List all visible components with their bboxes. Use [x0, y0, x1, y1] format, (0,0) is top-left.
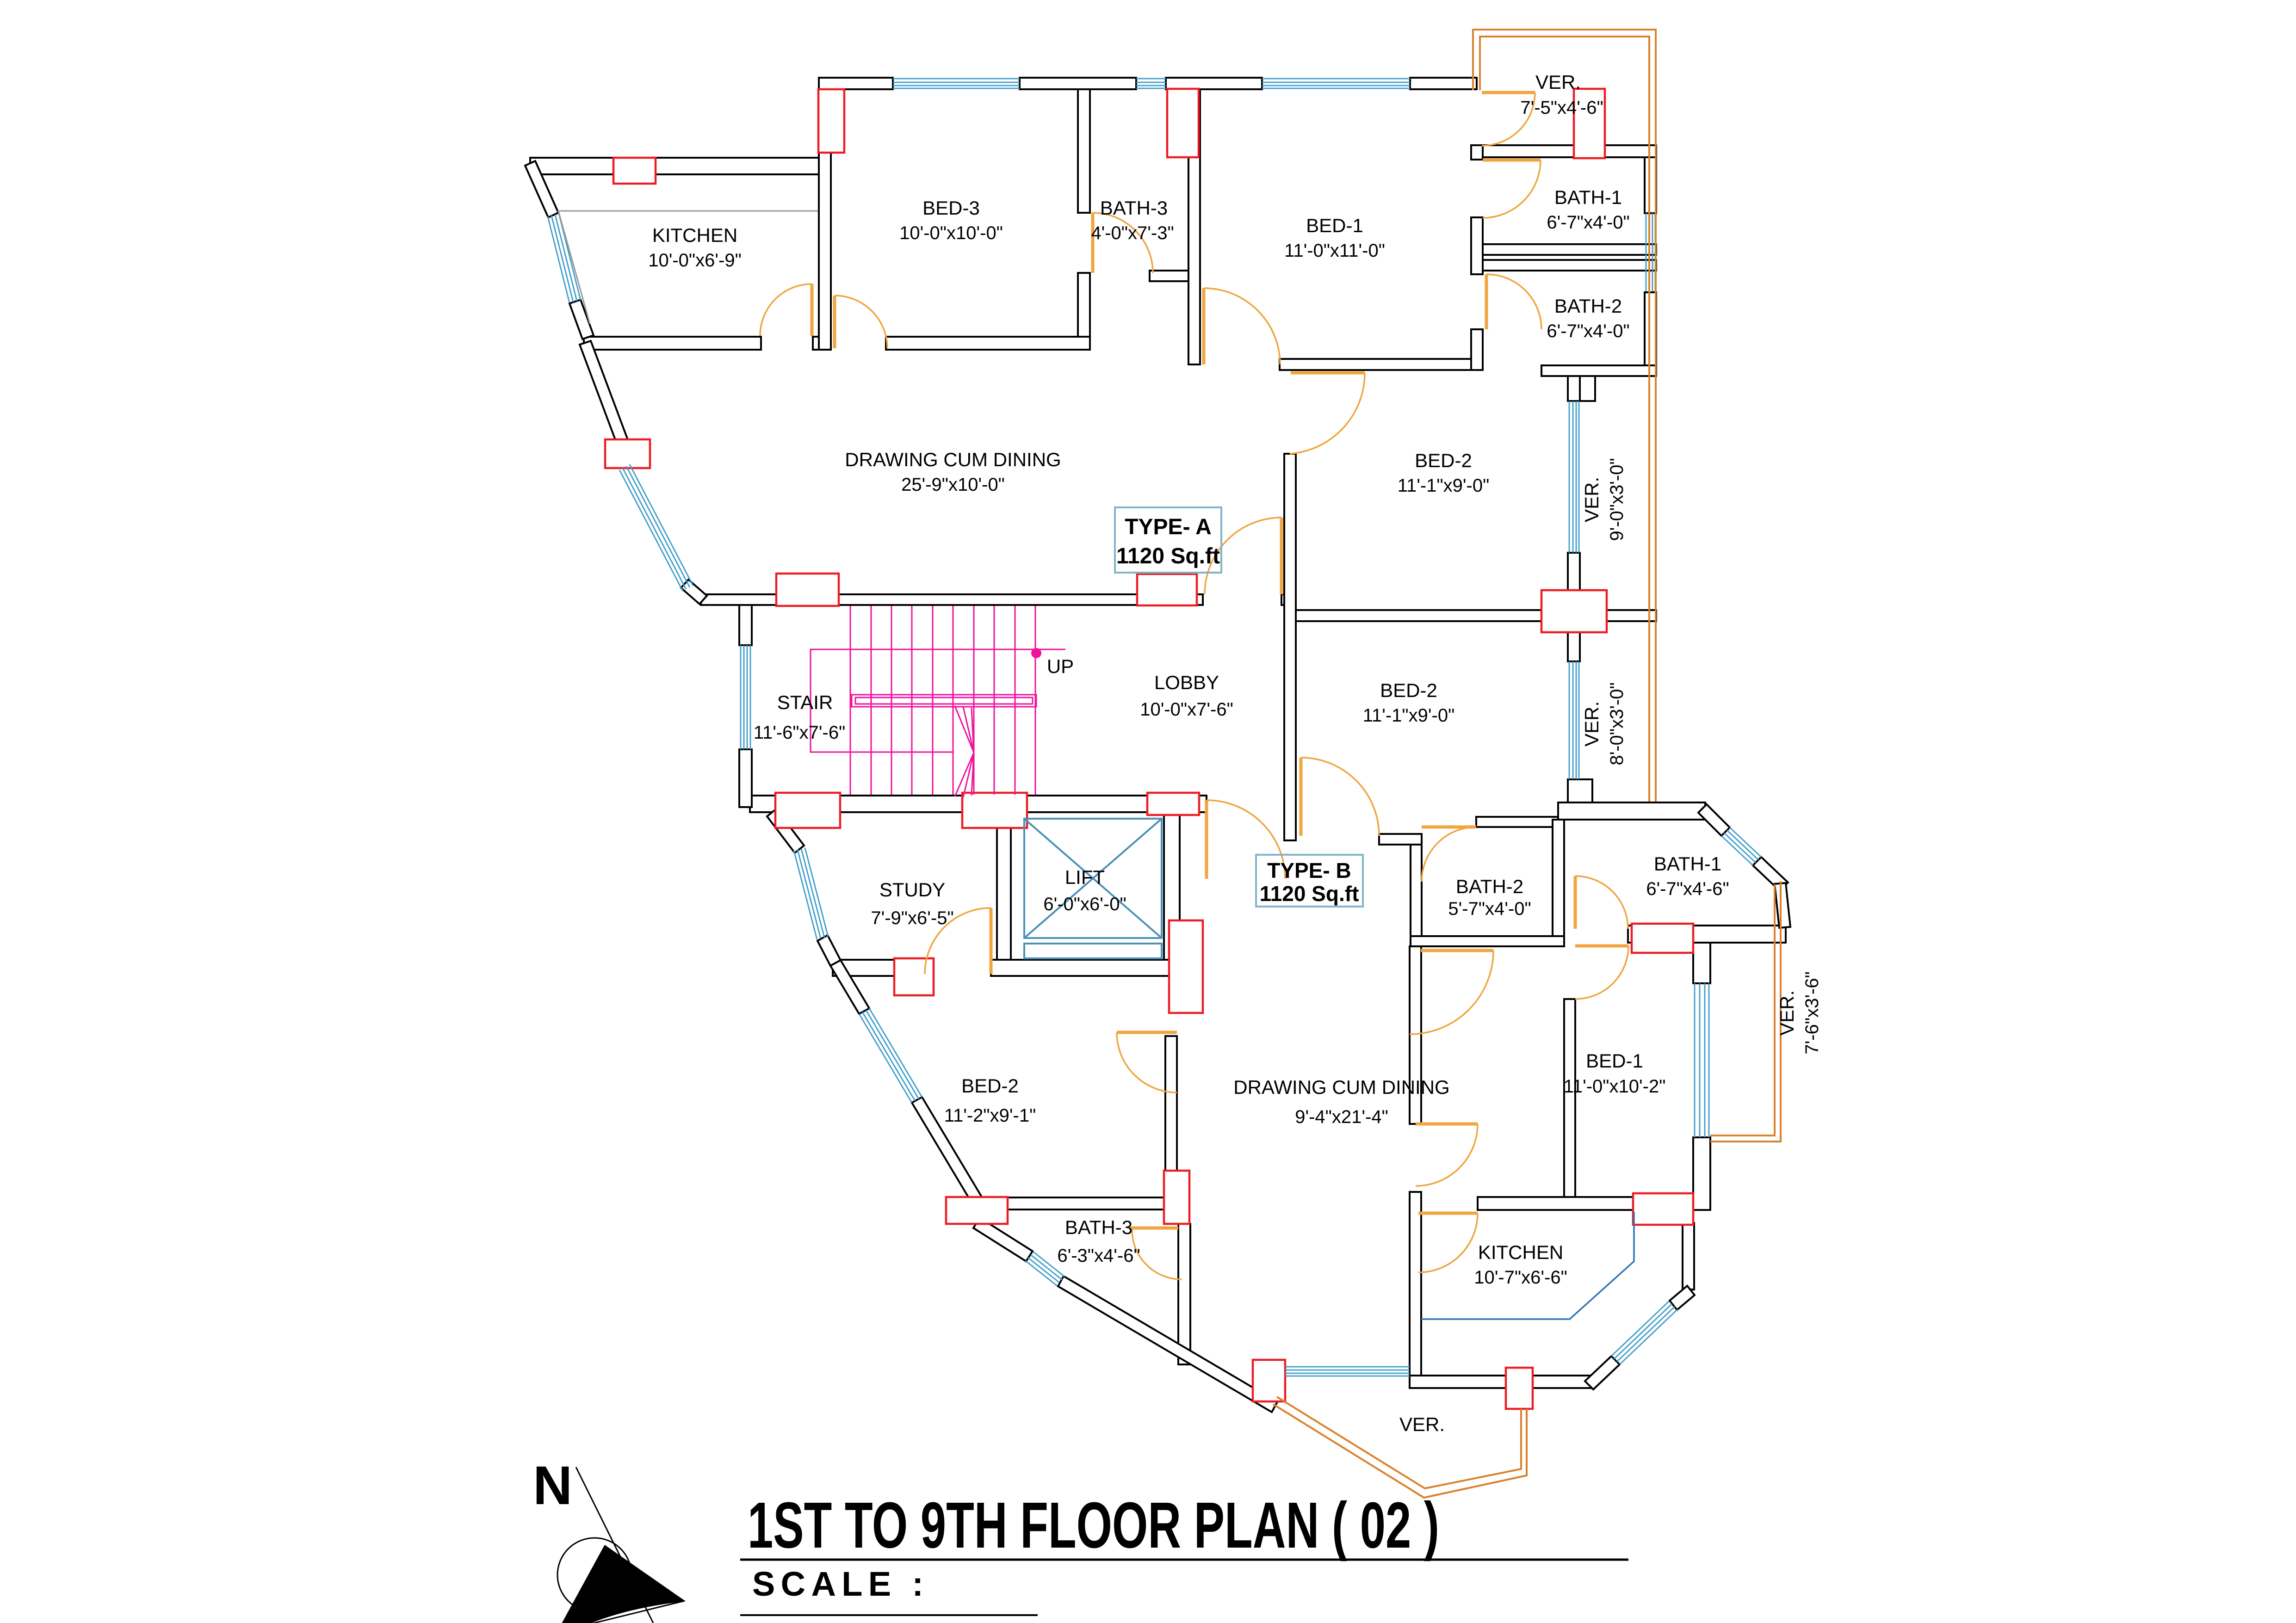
svg-text:BED-1: BED-1 [1586, 1050, 1643, 1072]
svg-text:11'-0"x11'-0": 11'-0"x11'-0" [1284, 241, 1385, 261]
svg-text:VER.: VER. [1535, 71, 1581, 93]
svg-text:TYPE- A: TYPE- A [1125, 515, 1212, 539]
svg-text:VER.: VER. [1581, 477, 1603, 522]
svg-text:6'-0"x6'-0": 6'-0"x6'-0" [1043, 894, 1126, 914]
svg-text:VER.: VER. [1581, 701, 1603, 747]
svg-text:LOBBY: LOBBY [1154, 672, 1219, 693]
svg-text:BED-1: BED-1 [1306, 215, 1363, 236]
svg-text:TYPE- B: TYPE- B [1267, 858, 1351, 882]
svg-text:UP: UP [1047, 655, 1074, 677]
svg-text:KITCHEN: KITCHEN [652, 224, 737, 246]
svg-text:BATH-3: BATH-3 [1065, 1216, 1133, 1238]
svg-text:11'-2"x9'-1": 11'-2"x9'-1" [944, 1105, 1036, 1126]
svg-text:10'-0"x10'-0": 10'-0"x10'-0" [899, 223, 1003, 243]
svg-text:BED-2: BED-2 [961, 1075, 1019, 1097]
svg-text:11'-1"x9'-0": 11'-1"x9'-0" [1398, 475, 1490, 496]
svg-text:11'-6"x7'-6": 11'-6"x7'-6" [754, 722, 846, 743]
svg-text:7'-9"x6'-5": 7'-9"x6'-5" [871, 908, 953, 928]
svg-text:VER.: VER. [1776, 990, 1798, 1036]
svg-text:BATH-2: BATH-2 [1554, 295, 1622, 317]
svg-text:10'-0"x7'-6": 10'-0"x7'-6" [1140, 699, 1233, 720]
svg-text:VER.: VER. [1399, 1413, 1445, 1435]
svg-text:8'-0"x3'-0": 8'-0"x3'-0" [1607, 682, 1627, 765]
svg-text:10'-0"x6'-9": 10'-0"x6'-9" [648, 250, 742, 271]
svg-text:BED-2: BED-2 [1380, 679, 1437, 701]
svg-text:6'-7"x4'-0": 6'-7"x4'-0" [1547, 212, 1629, 233]
svg-text:KITCHEN: KITCHEN [1478, 1241, 1563, 1263]
svg-text:STUDY: STUDY [879, 879, 945, 901]
svg-text:7'-5"x4'-6": 7'-5"x4'-6" [1520, 98, 1603, 118]
svg-text:9'-4"x21'-4": 9'-4"x21'-4" [1295, 1107, 1388, 1127]
svg-text:1120 Sq.ft: 1120 Sq.ft [1260, 882, 1359, 906]
svg-text:DRAWING CUM DINING: DRAWING CUM DINING [1233, 1076, 1449, 1098]
svg-text:11'-1"x9'-0": 11'-1"x9'-0" [1363, 705, 1455, 726]
svg-text:4'-0"x7'-3": 4'-0"x7'-3" [1091, 223, 1174, 243]
svg-text:BATH-1: BATH-1 [1654, 853, 1721, 875]
svg-text:6'-7"x4'-6": 6'-7"x4'-6" [1646, 879, 1729, 899]
svg-text:5'-7"x4'-0": 5'-7"x4'-0" [1448, 899, 1531, 919]
svg-text:11'-0"x10'-2": 11'-0"x10'-2" [1564, 1076, 1666, 1097]
svg-text:BED-2: BED-2 [1415, 450, 1472, 471]
svg-text:BATH-3: BATH-3 [1100, 197, 1168, 219]
svg-text:BATH-1: BATH-1 [1554, 186, 1622, 208]
svg-text:6'-3"x4'-6": 6'-3"x4'-6" [1057, 1246, 1140, 1266]
svg-text:BED-3: BED-3 [922, 197, 980, 219]
svg-text:9'-0"x3'-0": 9'-0"x3'-0" [1607, 458, 1627, 541]
svg-text:25'-9"x10'-0": 25'-9"x10'-0" [901, 475, 1005, 495]
svg-text:DRAWING CUM DINING: DRAWING CUM DINING [845, 449, 1061, 470]
svg-text:10'-7"x6'-6": 10'-7"x6'-6" [1474, 1267, 1567, 1288]
svg-text:STAIR: STAIR [777, 691, 833, 713]
svg-text:7'-6"x3'-6": 7'-6"x3'-6" [1802, 971, 1822, 1054]
svg-text:6'-7"x4'-0": 6'-7"x4'-0" [1547, 321, 1629, 341]
svg-text:N: N [533, 1455, 572, 1516]
svg-text:1120 Sq.ft: 1120 Sq.ft [1116, 544, 1220, 568]
svg-text:BATH-2: BATH-2 [1456, 876, 1523, 897]
svg-text:LIFT: LIFT [1065, 866, 1105, 888]
svg-text:1ST TO 9TH FLOOR PLAN ( 02 ): 1ST TO 9TH FLOOR PLAN ( 02 ) [748, 1488, 1439, 1561]
